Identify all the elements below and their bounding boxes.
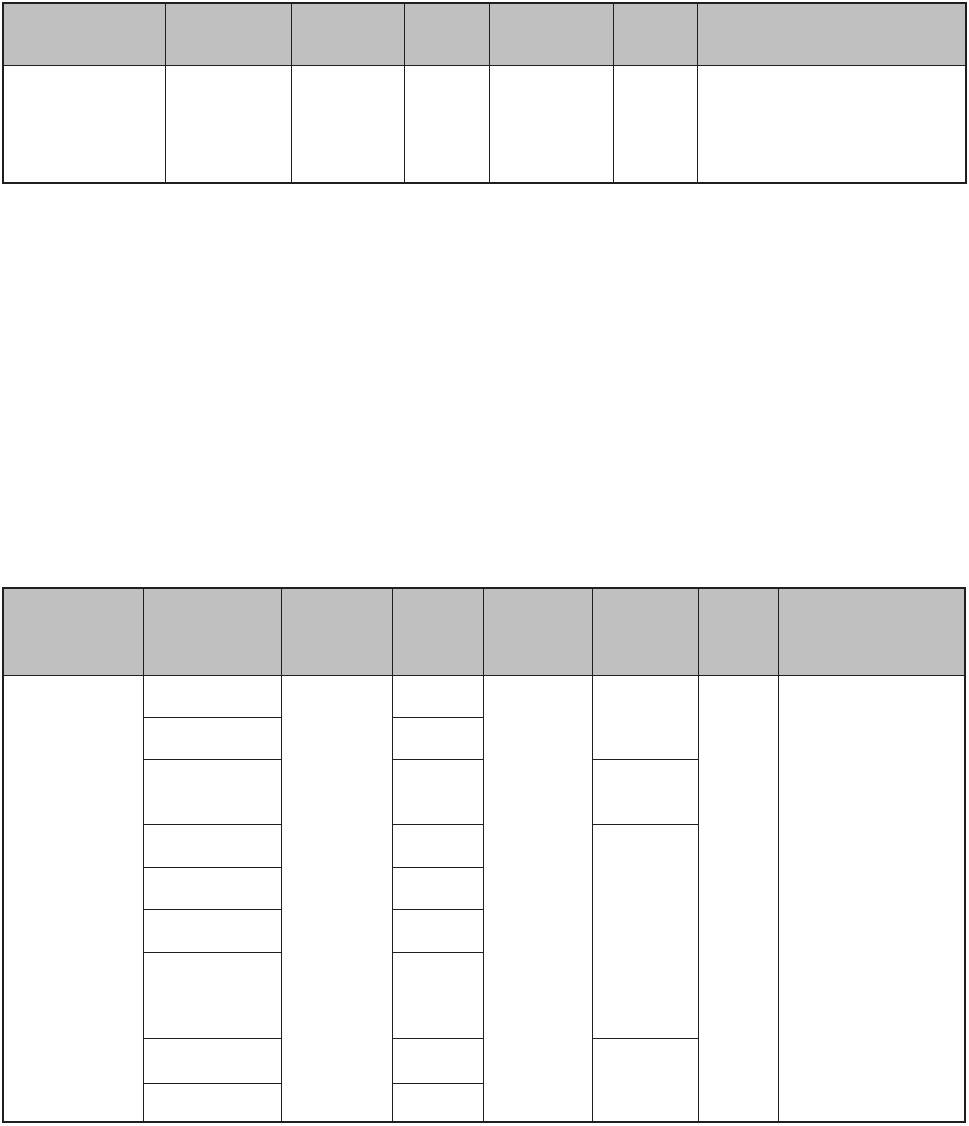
body-cell [143,675,281,717]
body-cell [613,65,697,183]
header-cell [392,588,483,675]
header-cell [3,588,143,675]
body-cell [392,759,483,824]
body-cell [143,867,281,909]
header-cell [143,588,281,675]
body-cell-col1-span [3,675,143,1122]
header-cell [3,3,165,65]
header-cell [165,3,291,65]
body-cell [143,717,281,759]
header-cell [698,588,778,675]
top-table-body-row [3,65,966,183]
body-cell [143,1038,281,1083]
body-cell [143,824,281,867]
body-cell [3,65,165,183]
body-cell [592,1038,698,1122]
body-cell [143,909,281,952]
body-cell-col5-span [483,675,592,1122]
body-cell [697,65,966,183]
body-cell [291,65,404,183]
header-cell [697,3,966,65]
body-cell-col3-span [281,675,392,1122]
header-cell [613,3,697,65]
body-cell [143,759,281,824]
header-cell [592,588,698,675]
body-cell-col8-span [778,675,965,1122]
top-table [2,2,967,184]
body-cell [143,952,281,1038]
body-cell [392,1083,483,1122]
top-table-header-row [3,3,966,65]
body-cell [392,824,483,867]
body-cell [165,65,291,183]
body-cell [392,952,483,1038]
body-cell [392,675,483,717]
header-cell [489,3,613,65]
bottom-table [2,587,966,1123]
body-cell [404,65,489,183]
body-cell [143,1083,281,1122]
header-cell [483,588,592,675]
body-cell [592,675,698,759]
body-cell [489,65,613,183]
header-cell [281,588,392,675]
body-cell [392,909,483,952]
document-page [0,0,969,1126]
header-cell [404,3,489,65]
body-cell [592,759,698,824]
body-cell [392,867,483,909]
body-cell [392,1038,483,1083]
body-cell [392,717,483,759]
header-cell [291,3,404,65]
body-cell-col7-span [698,675,778,1122]
header-cell [778,588,965,675]
table-row [3,675,965,717]
bottom-table-header-row [3,588,965,675]
body-cell [592,824,698,1038]
